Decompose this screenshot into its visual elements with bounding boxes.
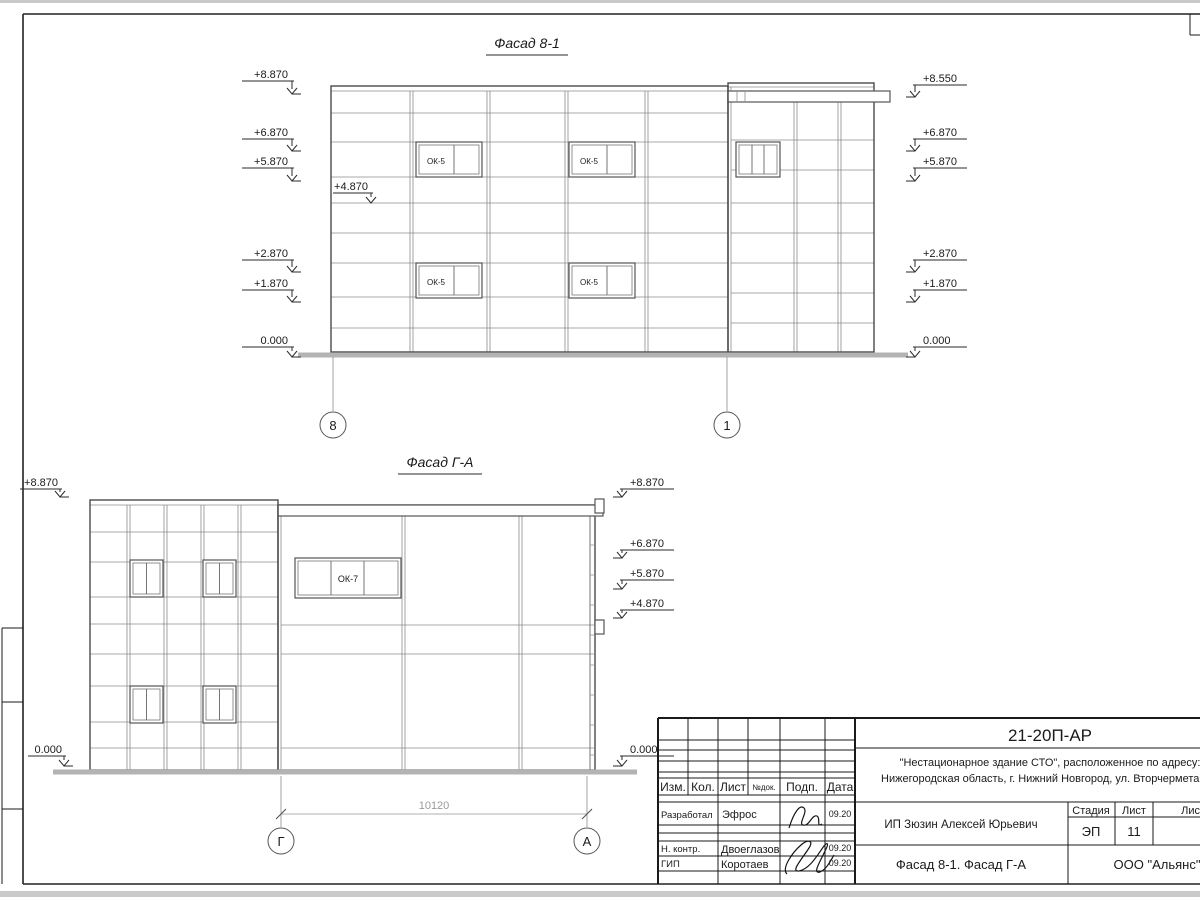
name: Эфрос [722, 809, 757, 821]
drawing-canvas: Фасад 8-1 ОК-5 ОК-5 ОК-5 [0, 0, 1200, 900]
window-label: ОК-5 [580, 278, 599, 287]
stage-value: ЭП [1082, 824, 1101, 839]
object-line-1: "Нестационарное здание СТО", расположенн… [900, 757, 1200, 769]
sheets-label: Листов [1181, 805, 1200, 817]
sheet-label: Лист [1122, 805, 1146, 817]
elevation-marks-left: +8.870 +6.870 +5.870 +2.870 +1.870 0.000… [242, 69, 376, 357]
signature-gip [785, 841, 834, 874]
grid-axis-a: А [574, 828, 600, 854]
name: Двоеглазов [721, 844, 780, 856]
page-top-edge [0, 0, 1200, 3]
col-kol: Кол. [691, 780, 715, 794]
window-three-pane [736, 142, 780, 177]
company: ООО "Альянс" [1114, 857, 1200, 872]
facade-g-a: Фасад Г-А [20, 454, 674, 854]
window-label: ОК-7 [338, 574, 358, 584]
elevation-label: +6.870 [630, 538, 664, 550]
window-ok5-lower-2: ОК-5 [569, 263, 635, 298]
elevation-label: +5.870 [630, 568, 664, 580]
elevation-label: +4.870 [334, 181, 368, 193]
drawing-sheet: Фасад 8-1 ОК-5 ОК-5 ОК-5 [0, 0, 1200, 900]
facade-title: Фасад Г-А [407, 454, 474, 470]
page-bottom-edge [0, 891, 1200, 897]
elevation-label: +2.870 [923, 248, 957, 260]
canopy [278, 505, 603, 516]
col-ndok: №док. [752, 783, 775, 792]
window-ok5-lower-1: ОК-5 [416, 263, 482, 298]
elevation-label: 0.000 [34, 744, 62, 756]
col-podp: Подп. [786, 780, 818, 794]
role: Н. контр. [661, 844, 700, 855]
elevation-label: +8.870 [630, 477, 664, 489]
elevation-label: 0.000 [260, 335, 288, 347]
role: ГИП [661, 859, 680, 870]
project-code: 21-20П-АР [1008, 726, 1092, 745]
date: 09.20 [829, 843, 852, 853]
dimension-label: 10120 [419, 800, 450, 812]
window-ok7: ОК-7 [295, 558, 401, 598]
elevation-label: 0.000 [923, 335, 951, 347]
elevation-label: +5.870 [254, 156, 288, 168]
elevation-label: +8.550 [923, 73, 957, 85]
sheet-value: 11 [1127, 824, 1141, 839]
elevation-label: +1.870 [923, 278, 957, 290]
elevation-label: +5.870 [923, 156, 957, 168]
facade-8-1: Фасад 8-1 ОК-5 ОК-5 ОК-5 [242, 35, 967, 438]
date: 09.20 [829, 809, 852, 819]
col-izm: Изм. [660, 780, 686, 794]
canopy [728, 91, 890, 102]
window-label: ОК-5 [427, 278, 446, 287]
grid-bubble-label: 1 [723, 418, 730, 433]
window-ok5-upper-2: ОК-5 [569, 142, 635, 177]
grid-bubble-label: Г [277, 834, 284, 849]
name: Коротаев [721, 859, 769, 871]
elevation-label: +6.870 [254, 127, 288, 139]
window-narrow-lower-1 [130, 686, 163, 723]
titleblock-row-ncontr: Н. контр. Двоеглазов 09.20 [661, 843, 851, 856]
grid-bubble-label: А [583, 834, 592, 849]
stage-label: Стадия [1072, 805, 1110, 817]
col-list: Лист [720, 780, 747, 794]
col-data: Дата [827, 780, 854, 794]
elevation-label: +8.870 [24, 477, 58, 489]
elevation-label: +8.870 [254, 69, 288, 81]
window-label: ОК-5 [427, 157, 446, 166]
window-ok5-upper-1: ОК-5 [416, 142, 482, 177]
sheet-title: Фасад 8-1. Фасад Г-А [896, 857, 1026, 872]
facade-title: Фасад 8-1 [494, 35, 560, 51]
elevation-label: +6.870 [923, 127, 957, 139]
window-label: ОК-5 [580, 157, 599, 166]
dimension-10120: 10120 [276, 776, 592, 827]
grid-axis-1: 1 [714, 357, 740, 438]
window-narrow-lower-2 [203, 686, 236, 723]
grid-bubble-label: 8 [329, 418, 336, 433]
elevation-marks-left: +8.870 0.000 [20, 477, 73, 766]
elevation-label: +4.870 [630, 598, 664, 610]
client: ИП Зюзин Алексей Юрьевич [884, 819, 1037, 831]
role: Разработал [661, 810, 713, 821]
grid-axis-g: Г [268, 828, 294, 854]
elevation-label: 0.000 [630, 744, 658, 756]
elevation-marks-right: +8.550 +6.870 +5.870 +2.870 +1.870 0.000 [906, 73, 967, 357]
titleblock-row-developer: Разработал Эфрос 09.20 [661, 809, 851, 821]
elevation-label: +2.870 [254, 248, 288, 260]
grid-axis-8: 8 [320, 357, 346, 438]
object-line-2: Нижегородская область, г. Нижний Новгоро… [881, 773, 1200, 785]
elevation-label: +1.870 [254, 278, 288, 290]
elevation-marks-right: +8.870 +6.870 +5.870 +4.870 0.000 [613, 477, 674, 766]
title-block: Изм. Кол. Лист №док. Подп. Дата Разработ… [658, 718, 1200, 884]
window-narrow-upper-1 [130, 560, 163, 597]
window-narrow-upper-2 [203, 560, 236, 597]
titleblock-row-gip: ГИП Коротаев 09.20 [661, 858, 851, 871]
